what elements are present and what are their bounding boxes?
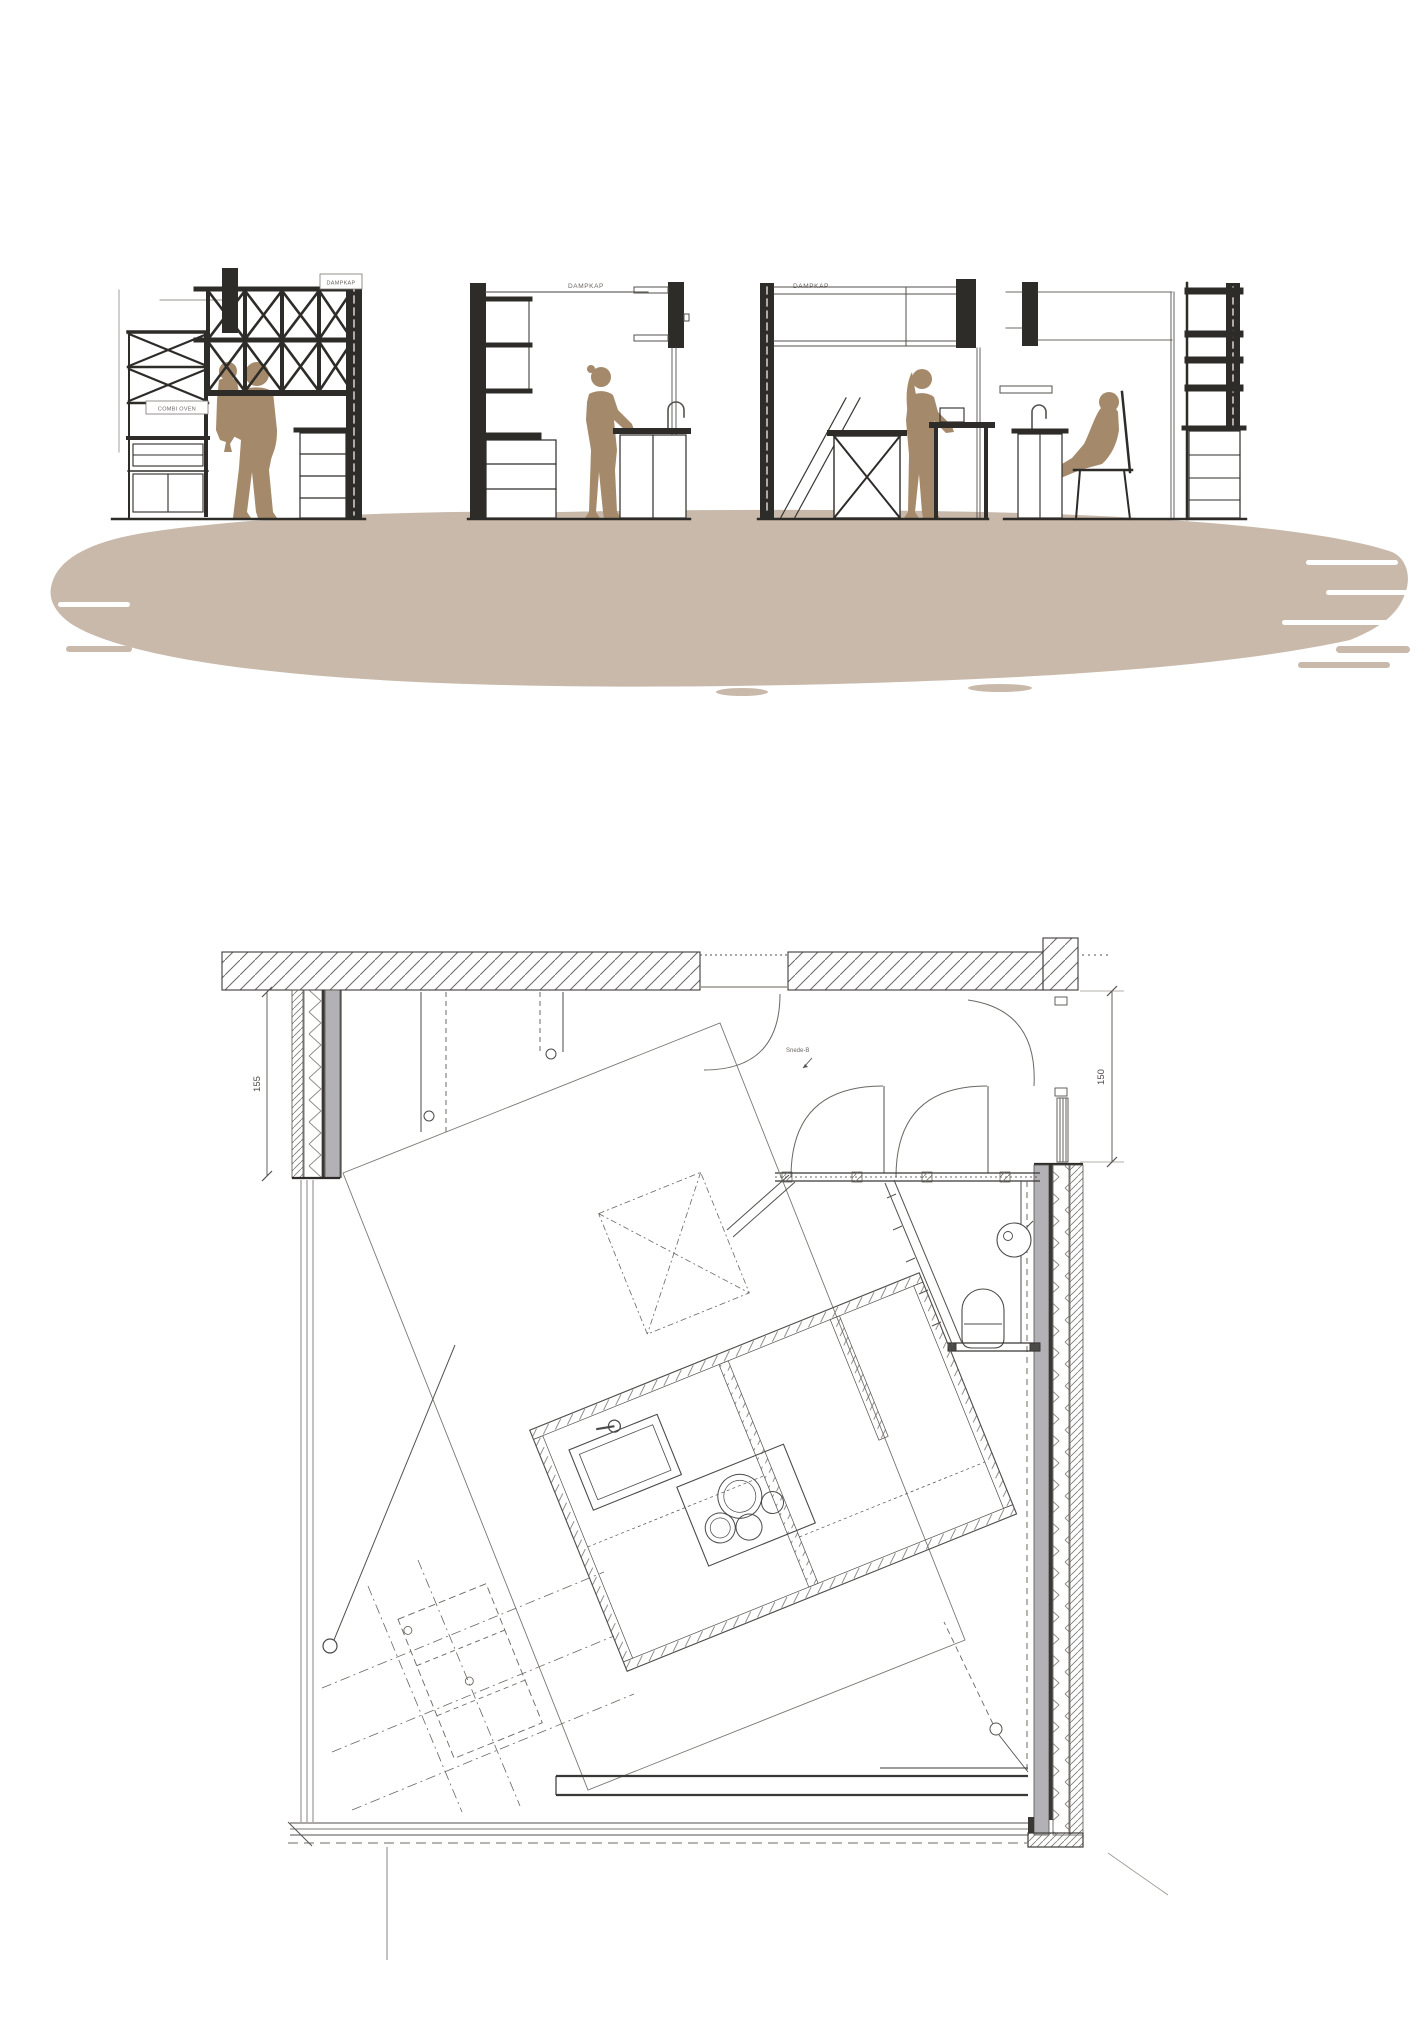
brush-gap xyxy=(58,602,130,607)
shelf-post xyxy=(470,283,486,519)
x-braced-cabinet xyxy=(830,433,904,518)
section-elevation-1: COMBI OVEN xyxy=(112,268,365,519)
sink-cabinet xyxy=(616,431,688,518)
hood-label: DAMPKAP xyxy=(568,283,604,290)
hood-block xyxy=(1022,282,1038,346)
brush-streak xyxy=(1336,646,1410,653)
shelf-tower xyxy=(128,332,208,517)
hood-label: DAMPKAP xyxy=(327,281,356,287)
pod-right-wall xyxy=(1021,1181,1027,1770)
brush-gap xyxy=(1282,620,1394,625)
drawer-cabinet xyxy=(296,430,348,518)
basin xyxy=(997,1223,1031,1257)
dimension-right: 150 xyxy=(1080,986,1124,1167)
wall-lines xyxy=(1171,292,1174,519)
brush-gap xyxy=(1306,560,1398,565)
pivot-door xyxy=(323,1345,455,1653)
ground-wash xyxy=(51,510,1410,696)
section-elevation-2: DAMPKAP xyxy=(468,282,690,519)
upper-shelf-lines xyxy=(774,287,958,346)
section-elevation-3: DAMPKAP xyxy=(758,279,992,519)
door-swings xyxy=(421,992,1034,1177)
section-elevation-4 xyxy=(1000,282,1246,519)
dimension-left: 155 xyxy=(252,987,272,1181)
lower-right-door xyxy=(944,1622,1028,1772)
architectural-sheet: COMBI OVEN xyxy=(0,0,1428,2028)
island-frame xyxy=(530,1273,1017,1671)
dim-left-text: 155 xyxy=(252,1076,263,1092)
bathroom-pod xyxy=(775,997,1068,1770)
combi-oven-label: COMBI OVEN xyxy=(158,407,196,413)
plan-annotation: Snede-B xyxy=(786,1048,812,1068)
annotation-text: Snede-B xyxy=(786,1048,809,1054)
brush-streak xyxy=(1298,662,1390,668)
toilet xyxy=(962,1289,1004,1348)
left-glazing xyxy=(301,1180,313,1822)
dim-right-text: 150 xyxy=(1096,1069,1107,1085)
brush-gap xyxy=(1326,590,1410,595)
faucet xyxy=(1032,405,1046,428)
projection-lines xyxy=(322,1560,634,1812)
figure-woman-cooking xyxy=(904,369,954,518)
hood-block xyxy=(668,282,684,348)
pantry-projection xyxy=(599,1172,750,1334)
stray-line xyxy=(1108,1853,1168,1895)
top-wall xyxy=(222,938,1110,990)
wall-shelf xyxy=(1000,386,1052,393)
table-projection xyxy=(398,1584,542,1759)
bench xyxy=(556,1768,1028,1795)
floor-plan: 155 150 Snede-B xyxy=(222,938,1168,1960)
tall-shelf-unit xyxy=(1184,283,1244,519)
connector-walls xyxy=(727,1175,962,1346)
brush-dab xyxy=(716,688,768,696)
drawing-svg: COMBI OVEN xyxy=(0,0,1428,2028)
pod-door-frame xyxy=(1055,997,1068,1162)
cooktop-counter xyxy=(932,408,992,519)
brush-dab xyxy=(968,684,1032,692)
sink-cabinet xyxy=(1014,431,1066,518)
right-wall xyxy=(1028,1164,1083,1847)
basin-tap xyxy=(1027,1221,1033,1227)
wall-lines xyxy=(977,348,980,519)
base-cabinet xyxy=(486,440,556,518)
brush-streak xyxy=(66,646,132,652)
wall-shelves xyxy=(486,297,538,436)
hood-block xyxy=(956,279,976,348)
left-wall xyxy=(292,990,341,1178)
